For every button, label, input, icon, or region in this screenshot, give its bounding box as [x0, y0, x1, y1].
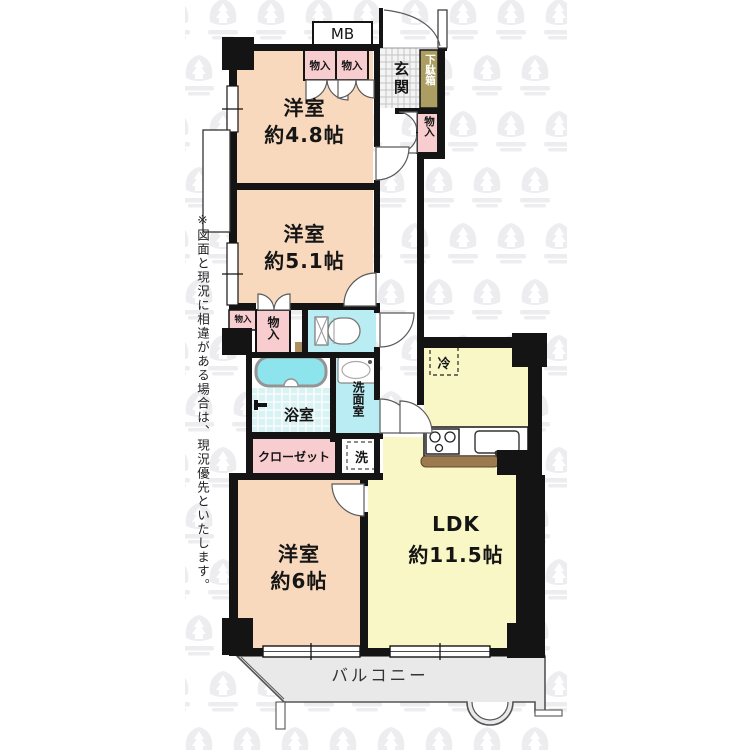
toilet-door-arc: [380, 313, 414, 347]
toilet-room: [308, 310, 376, 352]
storage-door-arc: [399, 112, 417, 132]
storage-hall-label: 物入: [265, 316, 282, 340]
ldk-size: 約11.5帖: [392, 539, 520, 568]
closet-label: クローゼット: [252, 448, 336, 465]
entrance-door-leaf: [379, 8, 383, 48]
washroom-label: 洗面室: [350, 381, 367, 417]
entrance-label: 玄関: [391, 61, 412, 97]
column-bottom-left: [222, 618, 253, 655]
storage-hall-small-label: 物入: [230, 313, 256, 325]
storage-entry-label: 物入: [422, 116, 437, 137]
shoe-cabinet-label: 下駄箱: [423, 54, 438, 86]
counter-icon: [421, 456, 499, 467]
meter-box-label: MB: [315, 25, 370, 43]
column-mid-left: [222, 328, 252, 355]
bedroom48-door-arc: [376, 147, 409, 180]
ldk-label: LDK: [392, 512, 520, 536]
bedroom51-size: 約5.1帖: [236, 245, 373, 274]
bedroom51-label: 洋室: [236, 218, 373, 247]
faucet-icon: [254, 400, 258, 410]
column-bottom-right: [507, 623, 545, 658]
bedroom48-label: 洋室: [236, 92, 373, 121]
bathroom-label: 浴室: [270, 404, 328, 425]
balcony-label: バルコニー: [300, 662, 460, 686]
entrance-door-arc: [384, 10, 440, 46]
bedroom48-size: 約4.8帖: [236, 119, 373, 148]
kitchen-sink-icon: [475, 431, 519, 453]
sink-icon: [342, 362, 370, 379]
washer-space-label: 洗: [347, 447, 376, 466]
room-ldk: [368, 348, 528, 648]
storage-top-right-label: 物入: [336, 58, 368, 73]
floorplan-drawing: [0, 0, 750, 750]
floorplan-page: 洋室 約4.8帖 洋室 約5.1帖 洋室 約6帖 LDK 約11.5帖 MB 物…: [0, 0, 750, 750]
column-top-left: [222, 37, 254, 70]
refrigerator-space-label: 冷: [430, 353, 458, 372]
toilet-icon: [328, 318, 360, 344]
disclaimer-text: ※図面と現況に相違がある場合は、現況優先といたします。: [193, 212, 212, 584]
column-top-right: [512, 333, 547, 367]
bedroom6-label: 洋室: [238, 538, 360, 567]
storage-top-left-label: 物入: [304, 58, 336, 73]
bedroom6-size: 約6帖: [238, 565, 360, 594]
